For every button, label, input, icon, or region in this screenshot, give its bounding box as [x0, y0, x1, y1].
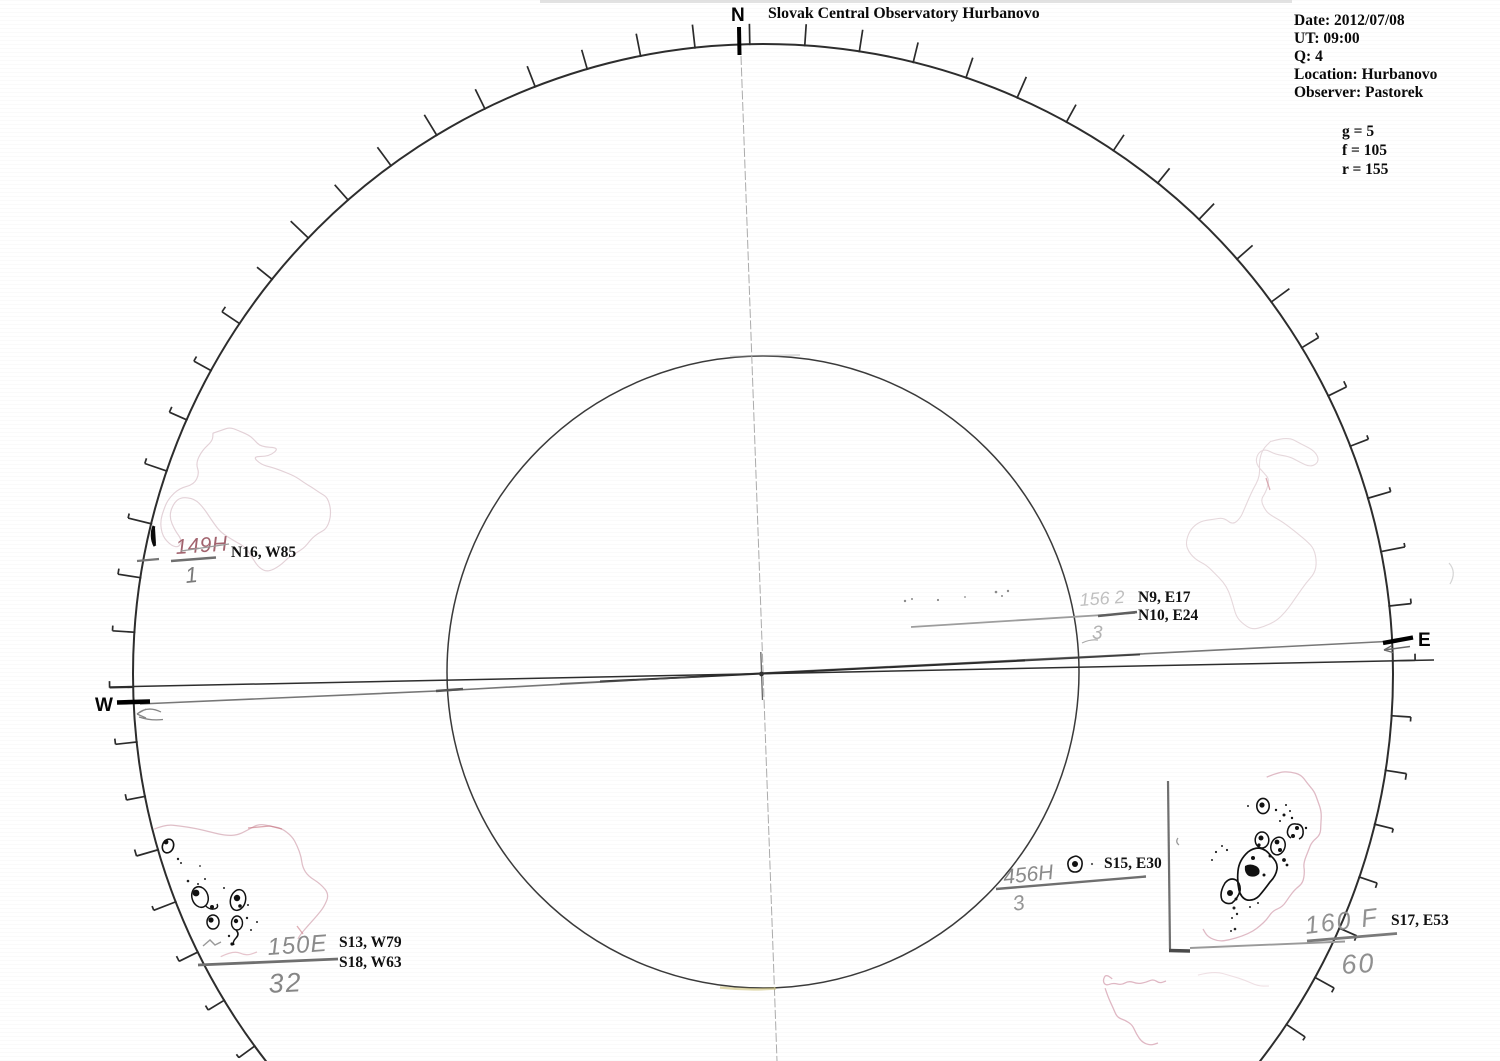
svg-text:156 2: 156 2: [1079, 587, 1125, 610]
svg-text:N9, E17: N9, E17: [1138, 589, 1191, 606]
svg-text:N: N: [731, 5, 745, 26]
svg-text:g = 5: g = 5: [1342, 123, 1374, 140]
svg-text:S18, W63: S18, W63: [339, 954, 402, 971]
svg-text:1: 1: [184, 562, 199, 588]
svg-text:150E: 150E: [267, 930, 329, 961]
svg-text:N10, E24: N10, E24: [1138, 607, 1199, 624]
svg-text:3: 3: [1011, 891, 1027, 916]
svg-text:32: 32: [268, 967, 304, 999]
svg-text:160 F: 160 F: [1303, 903, 1380, 940]
svg-text:Date: 2012/07/08: Date: 2012/07/08: [1294, 12, 1405, 29]
svg-text:W: W: [95, 695, 113, 716]
svg-text:f = 105: f = 105: [1342, 142, 1387, 159]
svg-text:60: 60: [1340, 948, 1376, 980]
svg-text:3: 3: [1092, 623, 1103, 644]
svg-text:r = 155: r = 155: [1342, 161, 1389, 178]
svg-text:S13, W79: S13, W79: [339, 934, 402, 951]
svg-text:Location: Hurbanovo: Location: Hurbanovo: [1294, 66, 1438, 83]
svg-text:Observer: Pastorek: Observer: Pastorek: [1294, 84, 1424, 101]
svg-text:Slovak Central Observatory Hur: Slovak Central Observatory Hurbanovo: [768, 5, 1040, 22]
svg-text:E: E: [1418, 630, 1431, 651]
svg-text:Q: 4: Q: 4: [1294, 48, 1323, 65]
svg-text:UT: 09:00: UT: 09:00: [1294, 30, 1360, 47]
svg-text:N16, W85: N16, W85: [231, 544, 296, 561]
svg-text:S15, E30: S15, E30: [1104, 855, 1162, 872]
svg-text:S17, E53: S17, E53: [1391, 912, 1449, 929]
